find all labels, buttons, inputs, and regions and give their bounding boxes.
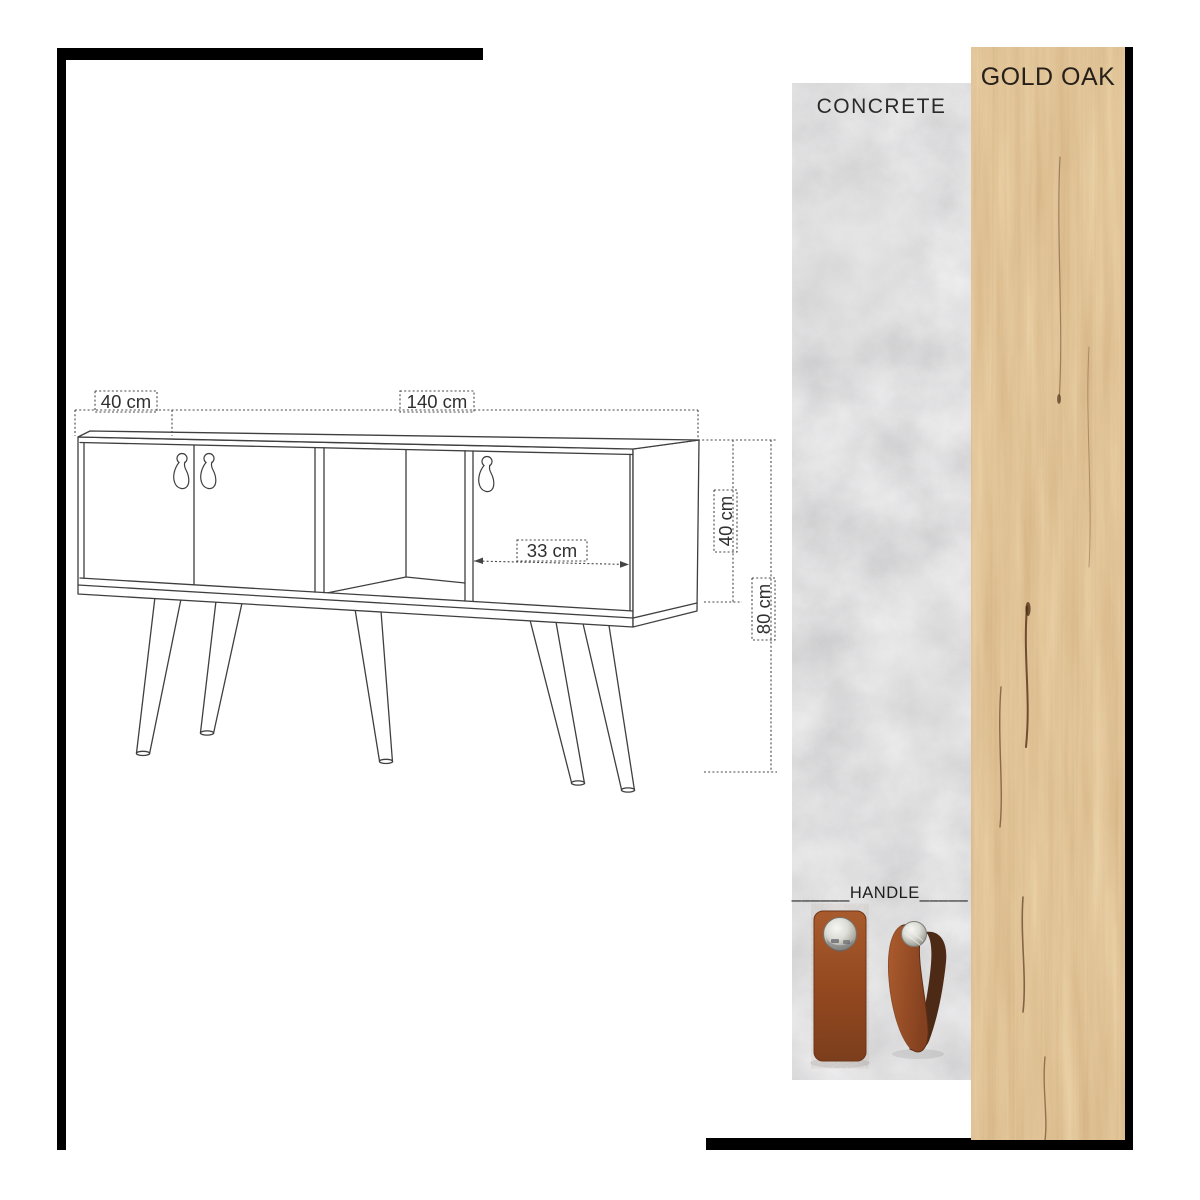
cabinet-side-face xyxy=(633,440,699,627)
dim-total-width: 140 cm xyxy=(407,391,468,412)
dim-body-height: 40 cm xyxy=(715,496,736,546)
dim-left-door-width: 40 cm xyxy=(101,391,151,412)
dim-right-door-width: 33 cm xyxy=(527,540,577,561)
product-sheet: CONCRETE GOLD OAK ______HANDLE_____ xyxy=(0,0,1200,1200)
dim-total-height: 80 cm xyxy=(753,584,774,634)
cabinet-front-face xyxy=(78,437,633,627)
cabinet-drawing xyxy=(78,431,699,792)
furniture-diagram: 40 cm 140 cm 33 cm 40 cm 80 cm xyxy=(0,0,1200,1200)
cabinet-legs xyxy=(136,597,634,792)
